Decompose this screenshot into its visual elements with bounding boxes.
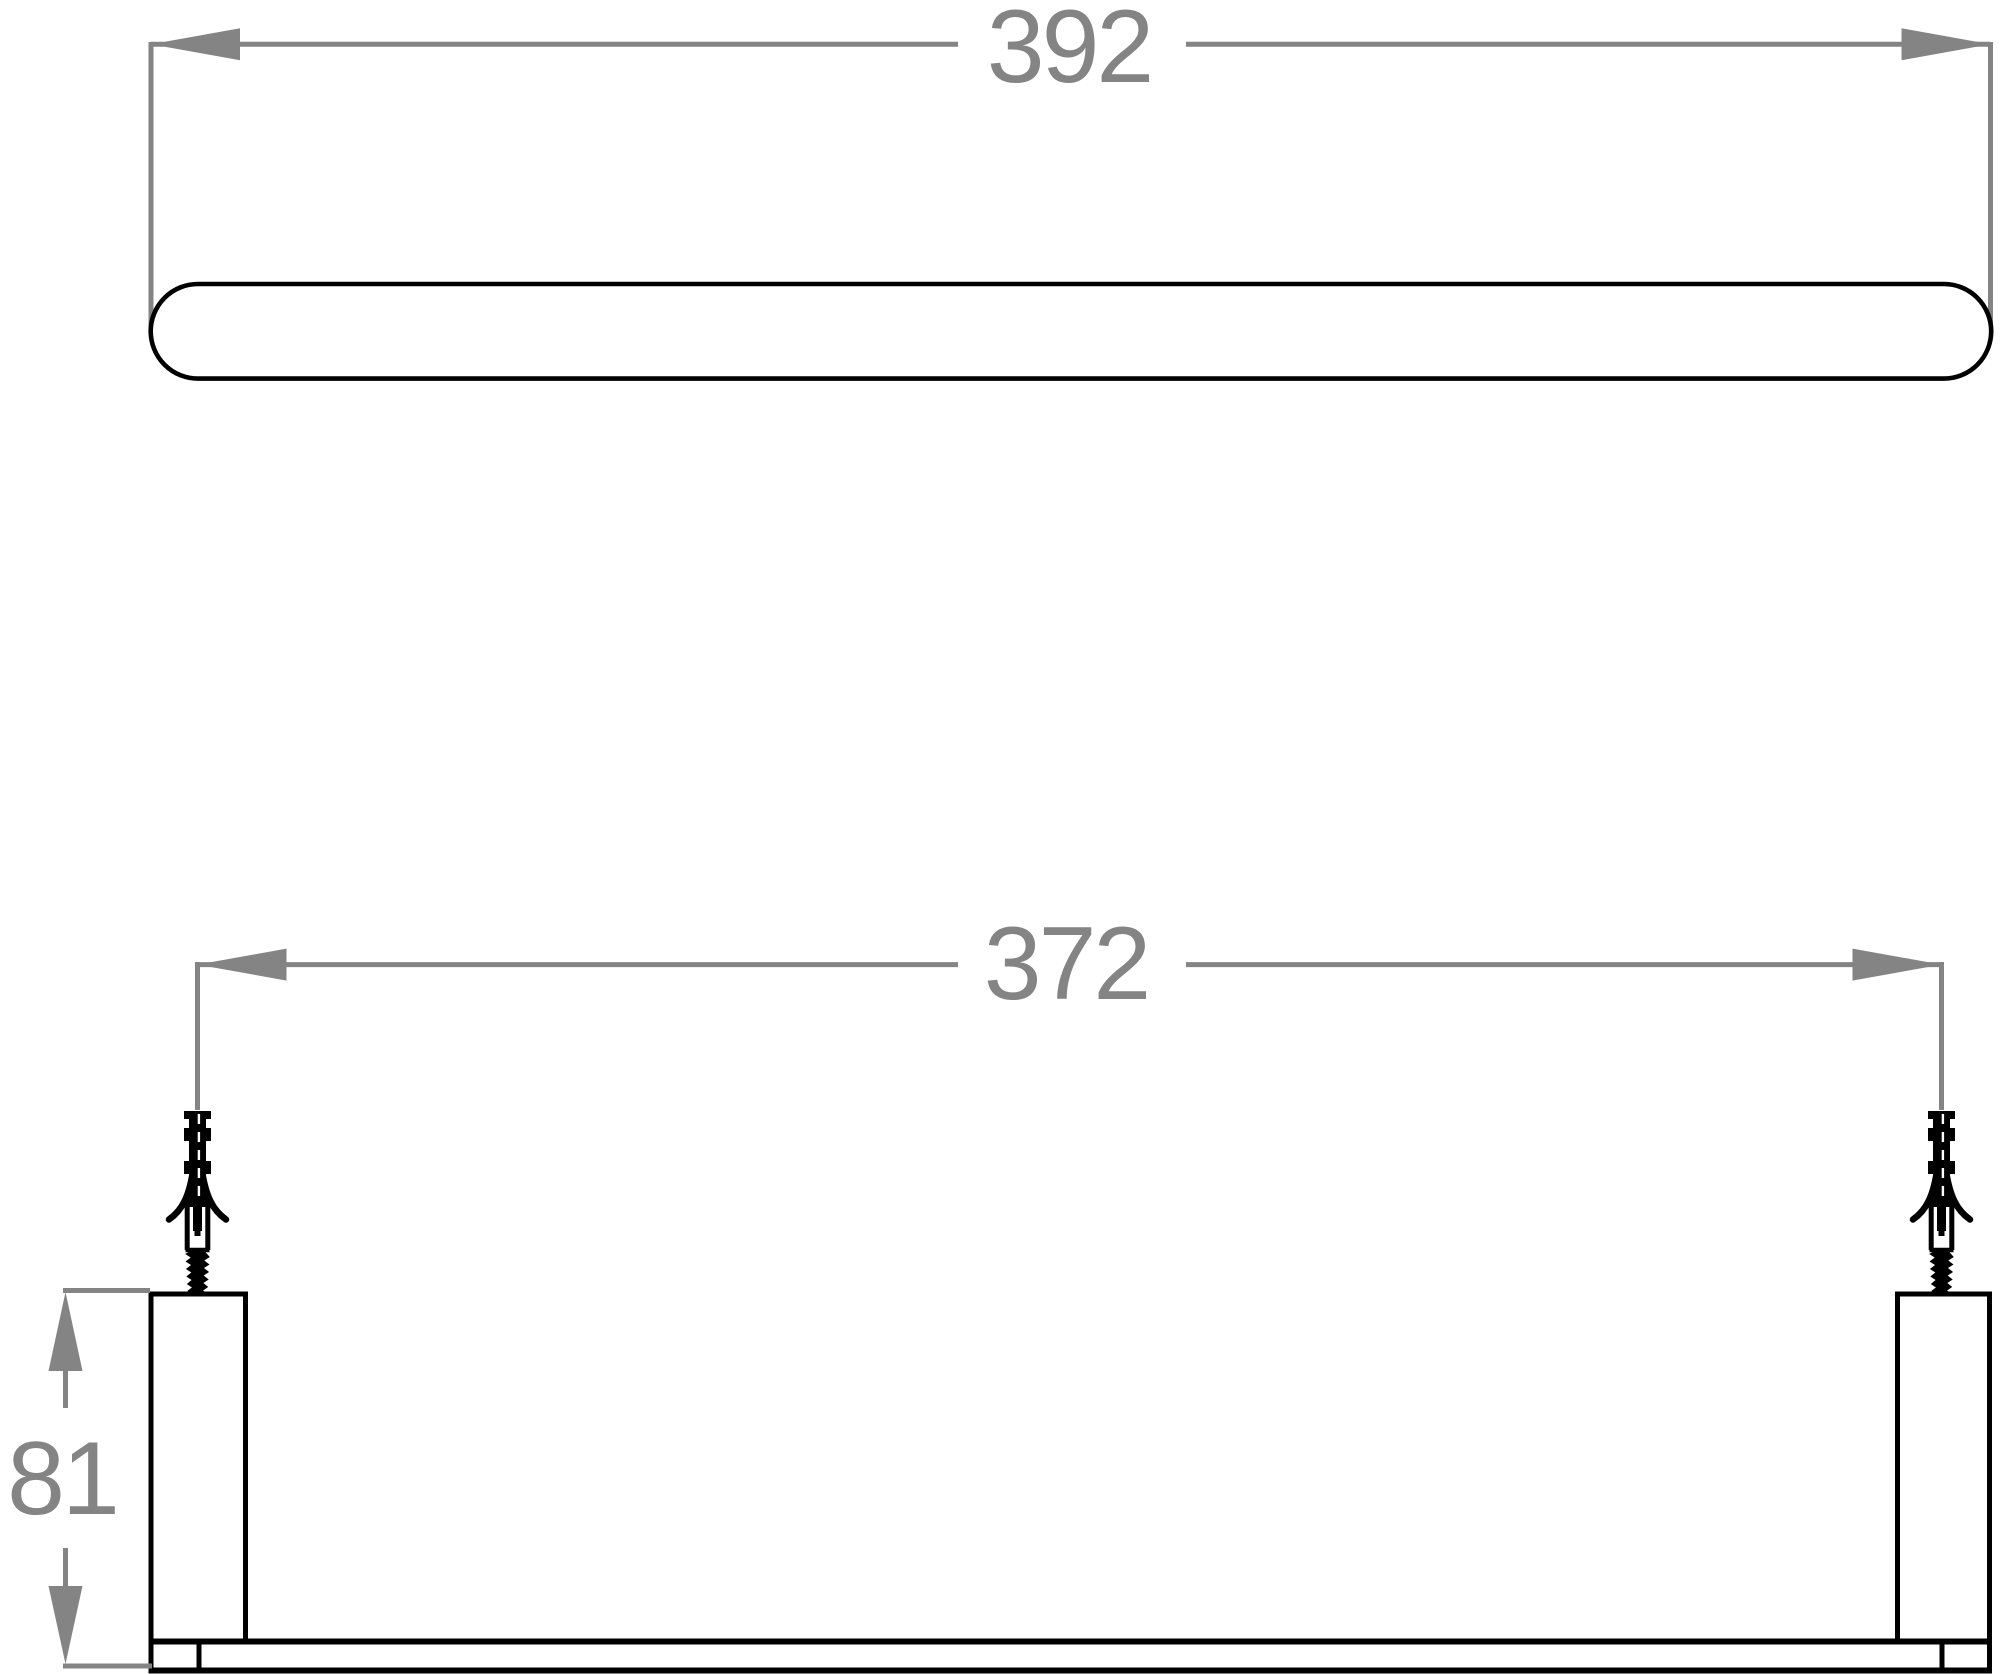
svg-text:81: 81 — [7, 1421, 117, 1537]
svg-text:392: 392 — [987, 0, 1152, 105]
svg-text:372: 372 — [984, 906, 1149, 1022]
